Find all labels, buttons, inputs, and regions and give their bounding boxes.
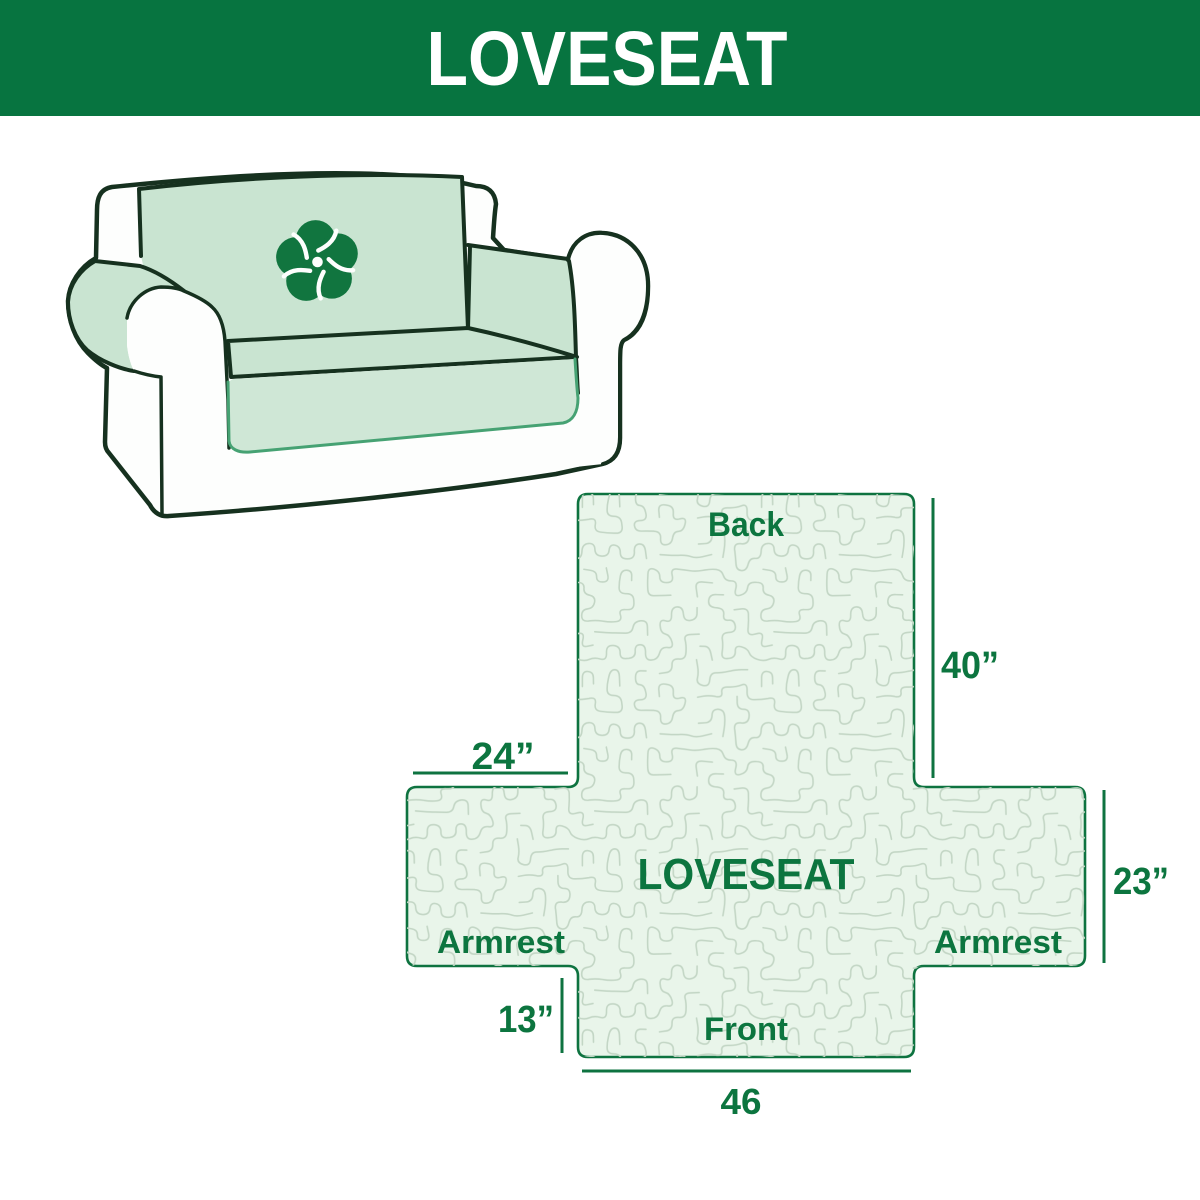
svg-text:40”: 40” [941, 645, 999, 687]
svg-text:Back: Back [708, 506, 784, 544]
svg-text:LOVESEAT: LOVESEAT [638, 850, 855, 899]
svg-text:Armrest: Armrest [437, 924, 565, 960]
svg-text:23”: 23” [1113, 861, 1169, 903]
svg-text:LOVESEAT: LOVESEAT [427, 16, 788, 102]
svg-text:Armrest: Armrest [934, 924, 1062, 960]
svg-text:46: 46 [721, 1081, 762, 1122]
svg-text:13”: 13” [498, 999, 554, 1041]
svg-text:24”: 24” [472, 736, 535, 778]
svg-text:Front: Front [704, 1011, 788, 1047]
